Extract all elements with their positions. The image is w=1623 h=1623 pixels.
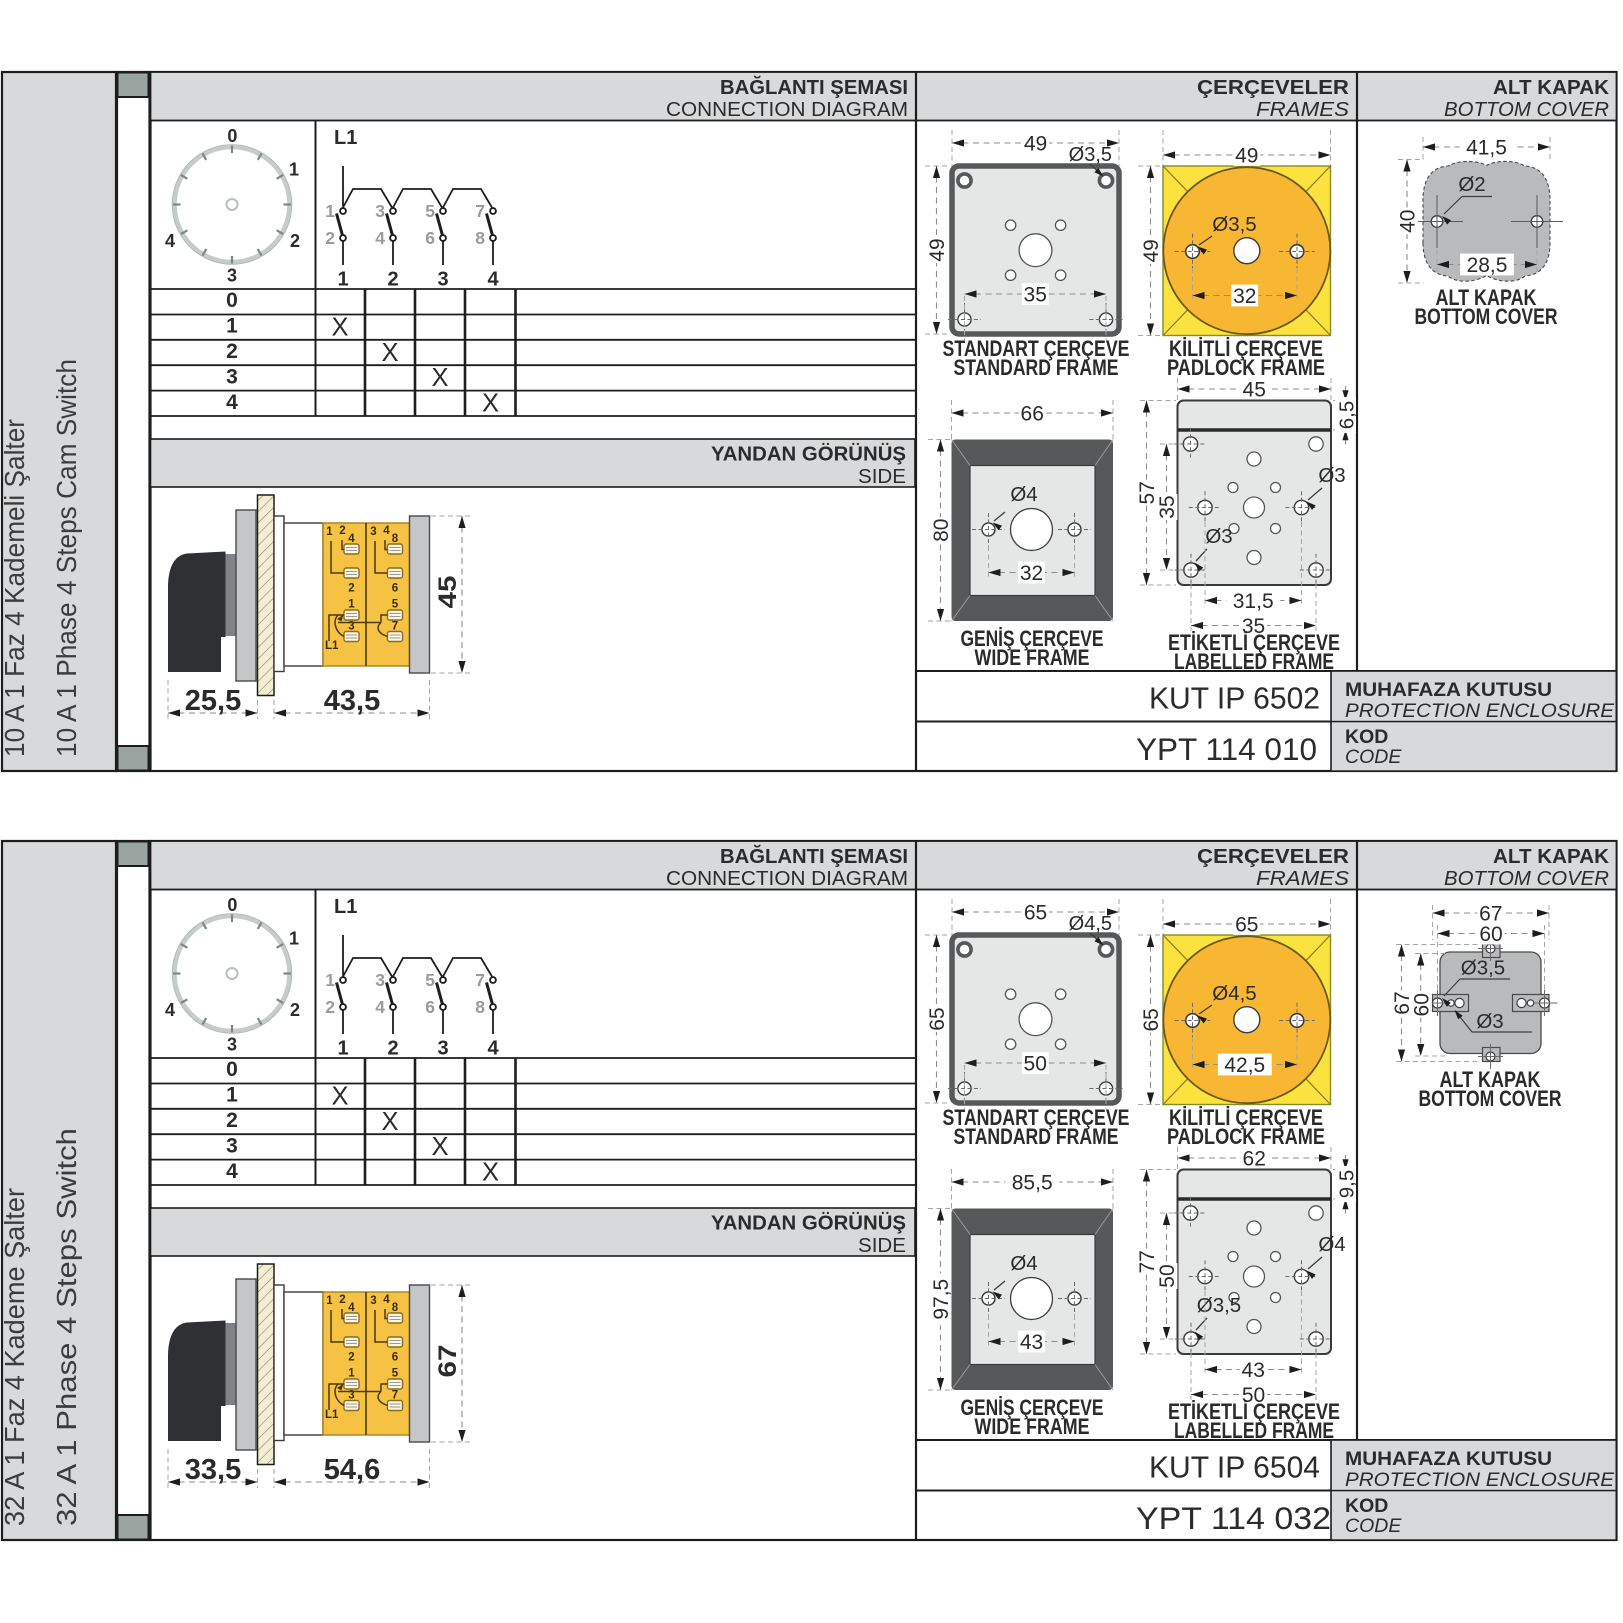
svg-text:4: 4 [375,997,385,1017]
svg-text:33,5: 33,5 [185,1454,241,1486]
svg-text:BAĞLANTI ŞEMASI: BAĞLANTI ŞEMASI [720,844,908,868]
svg-text:CODE: CODE [1345,1515,1402,1537]
svg-text:Ø3: Ø3 [1205,525,1232,548]
svg-text:3: 3 [437,1038,448,1060]
svg-text:2: 2 [387,1038,398,1060]
svg-text:Ø4,5: Ø4,5 [1069,913,1112,935]
svg-text:0: 0 [227,126,237,146]
svg-text:6: 6 [425,997,435,1017]
svg-text:4: 4 [226,391,238,414]
svg-text:3: 3 [226,365,238,388]
svg-text:1: 1 [289,929,299,949]
svg-text:45: 45 [1243,379,1266,402]
svg-text:1: 1 [325,201,335,221]
svg-text:2: 2 [348,1352,354,1364]
svg-text:7: 7 [475,970,485,990]
svg-text:65: 65 [1024,902,1047,925]
svg-text:43: 43 [1242,1359,1265,1382]
svg-text:3: 3 [226,1134,238,1157]
svg-text:4: 4 [383,1294,390,1306]
svg-text:6: 6 [392,583,398,595]
svg-text:BOTTOM COVER: BOTTOM COVER [1419,1086,1562,1111]
svg-text:STANDARD FRAME: STANDARD FRAME [954,1124,1119,1149]
svg-text:0: 0 [226,289,238,312]
svg-text:Ø3,5: Ø3,5 [1197,1294,1241,1317]
svg-text:ALT KAPAK: ALT KAPAK [1493,845,1609,868]
svg-text:KUT IP 6504: KUT IP 6504 [1149,1450,1320,1485]
svg-text:X: X [331,1083,348,1111]
svg-text:49: 49 [926,238,949,261]
svg-text:49: 49 [1024,133,1047,156]
svg-text:1: 1 [289,160,299,180]
svg-text:2: 2 [339,1294,345,1306]
svg-text:54,6: 54,6 [324,1454,380,1486]
svg-text:Ø3,5: Ø3,5 [1212,213,1256,236]
svg-text:25,5: 25,5 [185,685,241,717]
svg-text:45: 45 [434,575,462,608]
svg-text:YANDAN GÖRÜNÜŞ: YANDAN GÖRÜNÜŞ [711,443,906,466]
svg-text:3: 3 [370,1295,376,1307]
svg-text:2: 2 [226,340,238,363]
svg-text:2: 2 [226,1109,238,1132]
svg-text:PADLOCK FRAME: PADLOCK FRAME [1167,1124,1325,1149]
svg-text:WIDE FRAME: WIDE FRAME [975,1414,1090,1439]
svg-text:35: 35 [1024,284,1047,307]
svg-text:3: 3 [227,266,237,286]
svg-text:3: 3 [375,970,385,990]
svg-text:32 A 1 Faz 4 Kademe Şalter: 32 A 1 Faz 4 Kademe Şalter [0,1188,30,1526]
svg-text:1: 1 [226,315,238,338]
svg-text:1: 1 [348,599,355,611]
svg-text:STANDARD FRAME: STANDARD FRAME [954,355,1119,380]
svg-text:3: 3 [375,201,385,221]
svg-text:Ø4,5: Ø4,5 [1212,982,1256,1005]
svg-text:Ø2: Ø2 [1458,173,1485,196]
svg-text:5: 5 [425,970,435,990]
svg-text:Ø4: Ø4 [1010,1252,1037,1275]
svg-text:65: 65 [1140,1008,1163,1031]
svg-text:BOTTOM COVER: BOTTOM COVER [1415,304,1558,329]
svg-text:4: 4 [487,269,499,291]
svg-text:L1: L1 [325,640,339,652]
svg-text:65: 65 [926,1007,949,1030]
svg-text:WIDE FRAME: WIDE FRAME [975,645,1090,670]
svg-text:MUHAFAZA KUTUSU: MUHAFAZA KUTUSU [1345,1448,1552,1470]
svg-text:2: 2 [290,1000,300,1020]
svg-text:10 A 1 Faz 4 Kademeli Şalter: 10 A 1 Faz 4 Kademeli Şalter [0,419,30,757]
svg-text:Ø3: Ø3 [1318,464,1345,487]
svg-text:YPT 114 032: YPT 114 032 [1136,1500,1331,1536]
svg-text:9,5: 9,5 [1336,1170,1359,1199]
svg-text:32: 32 [1233,285,1256,308]
svg-text:PADLOCK FRAME: PADLOCK FRAME [1167,355,1325,380]
svg-text:PROTECTION ENCLOSURE: PROTECTION ENCLOSURE [1345,1469,1615,1491]
svg-text:X: X [381,339,398,367]
svg-text:6: 6 [392,1352,398,1364]
svg-text:97,5: 97,5 [930,1279,953,1320]
svg-text:1: 1 [337,1038,348,1060]
svg-text:CONNECTION DIAGRAM: CONNECTION DIAGRAM [666,98,908,121]
svg-text:5: 5 [392,599,399,611]
svg-text:YANDAN GÖRÜNÜŞ: YANDAN GÖRÜNÜŞ [711,1212,906,1235]
svg-text:X: X [381,1108,398,1136]
svg-text:7: 7 [392,621,398,633]
svg-text:60: 60 [1410,993,1433,1016]
svg-text:Ø4: Ø4 [1010,483,1037,506]
svg-text:X: X [482,390,499,418]
svg-text:7: 7 [475,201,485,221]
svg-text:50: 50 [1024,1053,1047,1076]
svg-text:80: 80 [930,519,953,542]
svg-text:ALT KAPAK: ALT KAPAK [1493,76,1609,99]
svg-text:2: 2 [348,583,354,595]
svg-text:8: 8 [475,228,485,248]
svg-text:1: 1 [337,269,348,291]
svg-text:32: 32 [1020,562,1043,585]
svg-text:KUT IP 6502: KUT IP 6502 [1149,681,1320,716]
svg-text:4: 4 [165,1000,175,1020]
svg-text:BAĞLANTI ŞEMASI: BAĞLANTI ŞEMASI [720,75,908,99]
svg-text:KOD: KOD [1345,1495,1388,1517]
svg-text:66: 66 [1021,403,1044,426]
svg-text:0: 0 [227,895,237,915]
svg-text:62: 62 [1243,1148,1266,1171]
svg-text:7: 7 [392,1390,398,1402]
svg-text:Ø3,5: Ø3,5 [1461,957,1505,980]
svg-text:4: 4 [226,1160,238,1183]
svg-text:Ø3: Ø3 [1476,1010,1503,1033]
svg-text:BOTTOM COVER: BOTTOM COVER [1444,867,1609,890]
svg-text:5: 5 [425,201,435,221]
svg-text:4: 4 [487,1038,499,1060]
svg-text:ÇERÇEVELER: ÇERÇEVELER [1197,76,1349,99]
svg-text:41,5: 41,5 [1466,137,1507,160]
svg-text:4: 4 [165,231,175,251]
svg-text:85,5: 85,5 [1012,1172,1053,1195]
svg-text:Ø3,5: Ø3,5 [1069,144,1112,166]
svg-text:8: 8 [392,533,399,545]
svg-text:42,5: 42,5 [1224,1054,1265,1077]
svg-text:1: 1 [325,970,335,990]
svg-text:CODE: CODE [1345,746,1402,768]
svg-text:49: 49 [1235,145,1258,168]
svg-text:2: 2 [387,269,398,291]
svg-text:1: 1 [326,526,333,538]
svg-text:65: 65 [1235,914,1258,937]
svg-text:31,5: 31,5 [1233,590,1274,613]
svg-text:2: 2 [325,997,335,1017]
svg-text:L1: L1 [334,896,357,918]
svg-text:X: X [431,364,448,392]
svg-text:YPT 114 010: YPT 114 010 [1136,731,1317,767]
svg-text:49: 49 [1140,239,1163,262]
svg-text:L1: L1 [325,1409,339,1421]
svg-text:3: 3 [437,269,448,291]
svg-text:Ø4: Ø4 [1318,1233,1345,1256]
svg-text:MUHAFAZA KUTUSU: MUHAFAZA KUTUSU [1345,679,1552,701]
svg-text:1: 1 [226,1084,238,1107]
svg-text:43,5: 43,5 [324,685,380,717]
svg-text:4: 4 [348,1302,355,1314]
svg-text:BOTTOM COVER: BOTTOM COVER [1444,98,1609,121]
svg-text:40: 40 [1397,210,1420,233]
svg-text:3: 3 [370,526,376,538]
svg-text:4: 4 [383,525,390,537]
svg-text:2: 2 [325,228,335,248]
svg-text:PROTECTION ENCLOSURE: PROTECTION ENCLOSURE [1345,700,1615,722]
svg-text:10 A 1 Phase 4 Steps Cam Switc: 10 A 1 Phase 4 Steps Cam Switch [51,359,82,757]
svg-text:2: 2 [339,525,345,537]
svg-text:3: 3 [227,1035,237,1055]
svg-text:5: 5 [392,1368,399,1380]
svg-text:CONNECTION DIAGRAM: CONNECTION DIAGRAM [666,867,908,890]
svg-text:FRAMES: FRAMES [1256,867,1349,890]
svg-text:0: 0 [226,1058,238,1081]
svg-text:KOD: KOD [1345,726,1388,748]
svg-text:35: 35 [1156,495,1179,518]
svg-text:6,5: 6,5 [1336,401,1359,430]
svg-text:43: 43 [1020,1331,1043,1354]
svg-text:ÇERÇEVELER: ÇERÇEVELER [1197,845,1349,868]
svg-text:X: X [331,314,348,342]
svg-text:4: 4 [375,228,385,248]
svg-text:32 A 1 Phase 4 Steps Switch: 32 A 1 Phase 4 Steps Switch [51,1128,82,1526]
svg-text:SIDE: SIDE [858,465,906,488]
svg-text:X: X [482,1159,499,1187]
svg-text:FRAMES: FRAMES [1256,98,1349,121]
svg-text:L1: L1 [334,127,357,149]
svg-text:6: 6 [425,228,435,248]
svg-text:2: 2 [290,231,300,251]
svg-text:60: 60 [1479,923,1502,946]
svg-text:1: 1 [326,1295,333,1307]
svg-text:28,5: 28,5 [1467,254,1508,277]
svg-text:8: 8 [392,1302,399,1314]
svg-text:67: 67 [434,1345,462,1378]
svg-text:X: X [431,1133,448,1161]
svg-text:1: 1 [348,1368,355,1380]
svg-text:SIDE: SIDE [858,1234,906,1257]
svg-text:50: 50 [1156,1264,1179,1287]
svg-text:8: 8 [475,997,485,1017]
svg-text:4: 4 [348,533,355,545]
